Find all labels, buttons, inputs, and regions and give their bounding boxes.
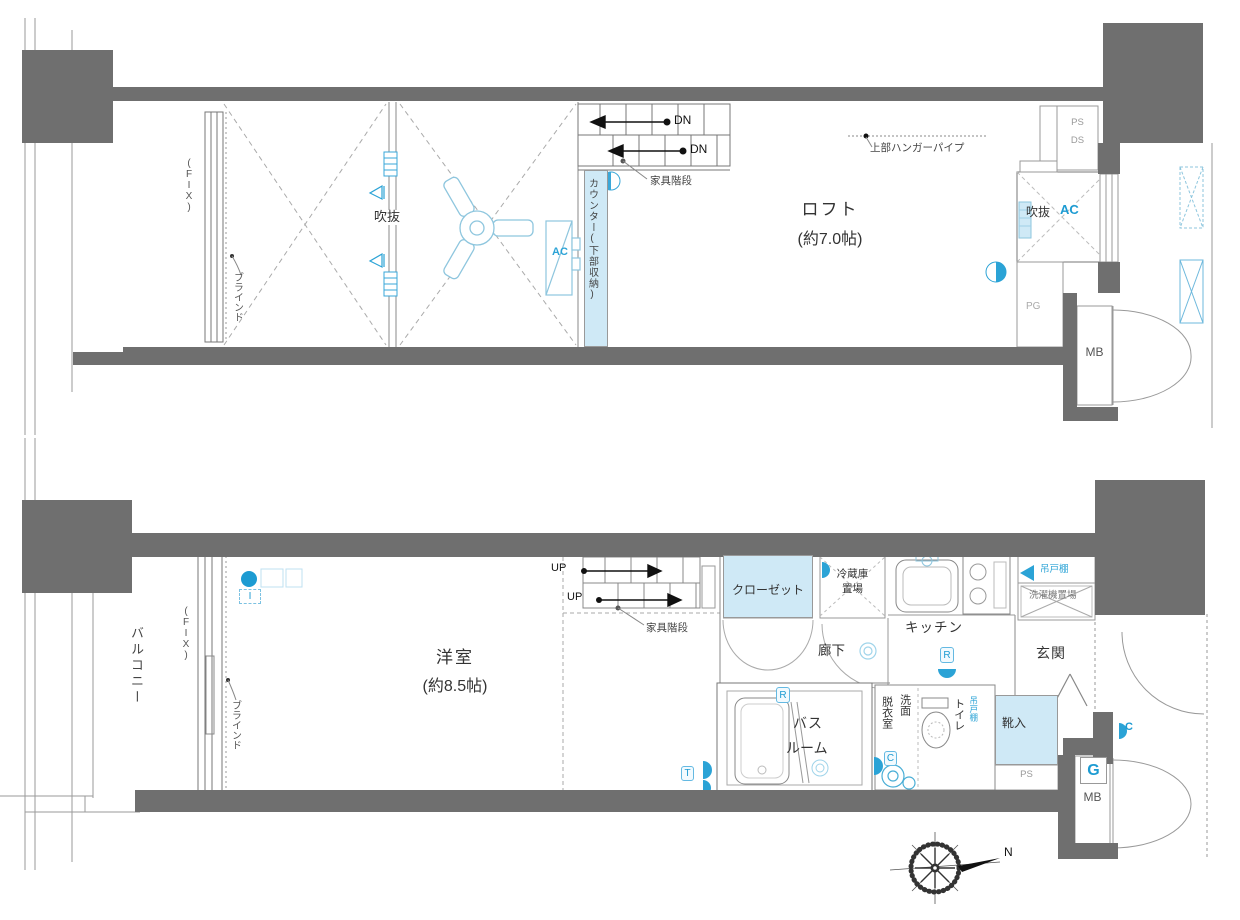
closet-label: クローゼット [723,584,813,598]
void-label: 吹抜 [372,210,402,225]
wall-segment [1098,262,1120,293]
fridge-label-line1: 冷蔵庫 [822,568,883,580]
kitchen-door-stop-icon [938,669,956,678]
stairs-up-arrows [581,565,681,606]
toilet-shelf-label: 吊戸棚 [968,696,978,722]
mb-label-lower: MB [1075,791,1110,805]
pg-label: PG [1026,301,1040,313]
counter-storage-label: カウンター(下部収納) [586,178,598,301]
loft-room-name: ロフト [770,200,890,220]
washroom-label-left: 脱衣室 [880,696,893,729]
ps-label-upper: PS [1057,118,1098,129]
stairs-dn2-label: DN [690,143,707,157]
kitchen-r-badge: R [940,647,954,663]
wall-segment [1095,480,1205,615]
toilet-label: トイレ [952,698,965,731]
lower-fix-window [198,556,236,792]
wall-segment [132,533,1103,557]
wall-segment [135,790,1065,812]
gas-meter-badge: G [1080,757,1107,784]
bathroom-label-line1: バス [793,715,823,731]
wall-segment [1058,755,1075,855]
laundry-space-box [1018,551,1095,620]
lower-blind-label: ブラインド [229,700,241,750]
washroom-label-right: 洗面 [898,694,911,716]
upper-stairs [578,104,730,170]
laundry-shelf-label: 吊戸棚 [1040,565,1069,576]
shoe-cabinet-label: 靴入 [1002,717,1026,731]
bath-r-badge: R [776,687,790,703]
lower-fix-window-label: (FIX) [180,606,192,661]
wash-c-badge: C [884,751,897,766]
hallway-light-icon [860,643,876,659]
wall-segment [1058,843,1118,859]
wall-segment [1103,23,1203,143]
wall-segment [1063,407,1118,421]
kitchen-counter [888,551,1015,615]
void-box-ac-label: AC [1060,203,1079,218]
western-room-size: (約8.5帖) [380,678,530,696]
wall-segment [73,352,123,365]
mb-label-upper: MB [1077,346,1112,360]
upper-right-window [1100,174,1118,262]
upper-blind-label: ブラインド [231,272,243,322]
western-room-name: 洋室 [395,648,515,668]
compass-north-label: N [1004,846,1013,860]
wall-segment [1098,143,1120,174]
compass-rose [890,832,1000,904]
loft-room-size: (約7.0帖) [755,231,905,249]
toilet-icon [922,698,950,748]
upper-stairs-leader [621,159,648,180]
lower-ac-mark [241,569,302,587]
wall-segment [1063,738,1113,755]
ac-unit-label: AC [548,246,572,259]
hanger-pipe-label: 上部ハンガーパイプ [870,142,964,154]
wall-segment [22,50,113,143]
wall-segment [22,500,132,593]
bathroom-label-line2: ルーム [786,740,828,756]
balcony-label: バルコニー [128,626,143,706]
vent-icon-upper [986,262,1006,282]
bath-t-badge: T [681,766,694,781]
ps-label-lower: PS [995,770,1058,781]
ceiling-fan-icon [442,176,533,281]
entrance-label: 玄関 [1036,645,1066,661]
void-box-label: 吹抜 [1026,206,1050,220]
stairs-dn1-label: DN [674,114,691,128]
upper-fix-window-label: (FIX) [183,158,195,213]
wall-segment [1063,293,1077,407]
wall-segment [113,87,1103,101]
lower-corridor [1119,614,1207,858]
ds-label-upper: DS [1057,136,1098,147]
bathroom-unit [717,683,872,792]
corridor-c-label: C [1125,721,1133,734]
hallway-label: 廊下 [818,643,845,659]
speaker-icons [370,186,384,267]
ac-mark-badge: I [239,589,261,604]
upper-stairs-caption: 家具階段 [650,175,692,187]
wall-segment [123,347,1063,365]
kitchen-label: キッチン [905,620,963,636]
floorplan-linework [0,0,1240,920]
upper-corridor [1180,143,1212,428]
fridge-label-line2: 置場 [822,583,883,595]
entrance-marks [1053,622,1204,714]
lower-stairs-caption: 家具階段 [646,622,688,634]
laundry-space-label: 洗濯機置場 [1029,591,1077,602]
floorplan-page: (FIX) ブラインド 吹抜 カウンター(下部収納) AC DN DN 家具階段… [0,0,1240,920]
stairs-up1-label: UP [551,562,566,575]
stairs-up2-label: UP [567,591,582,604]
